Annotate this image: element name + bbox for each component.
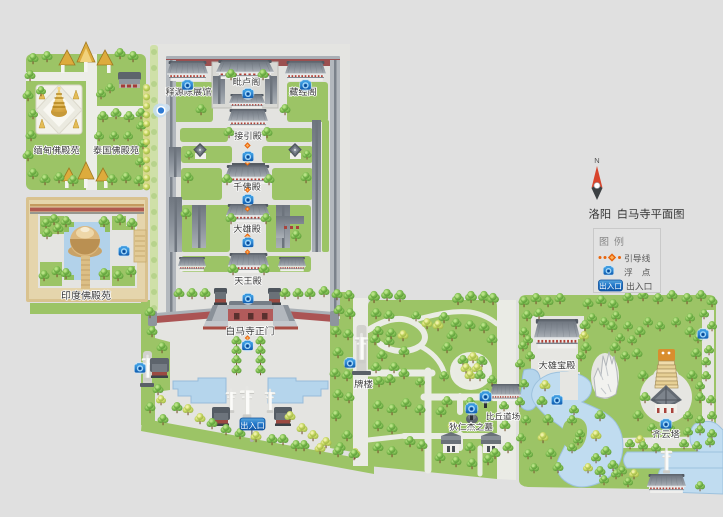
svg-text:N: N <box>594 156 599 165</box>
